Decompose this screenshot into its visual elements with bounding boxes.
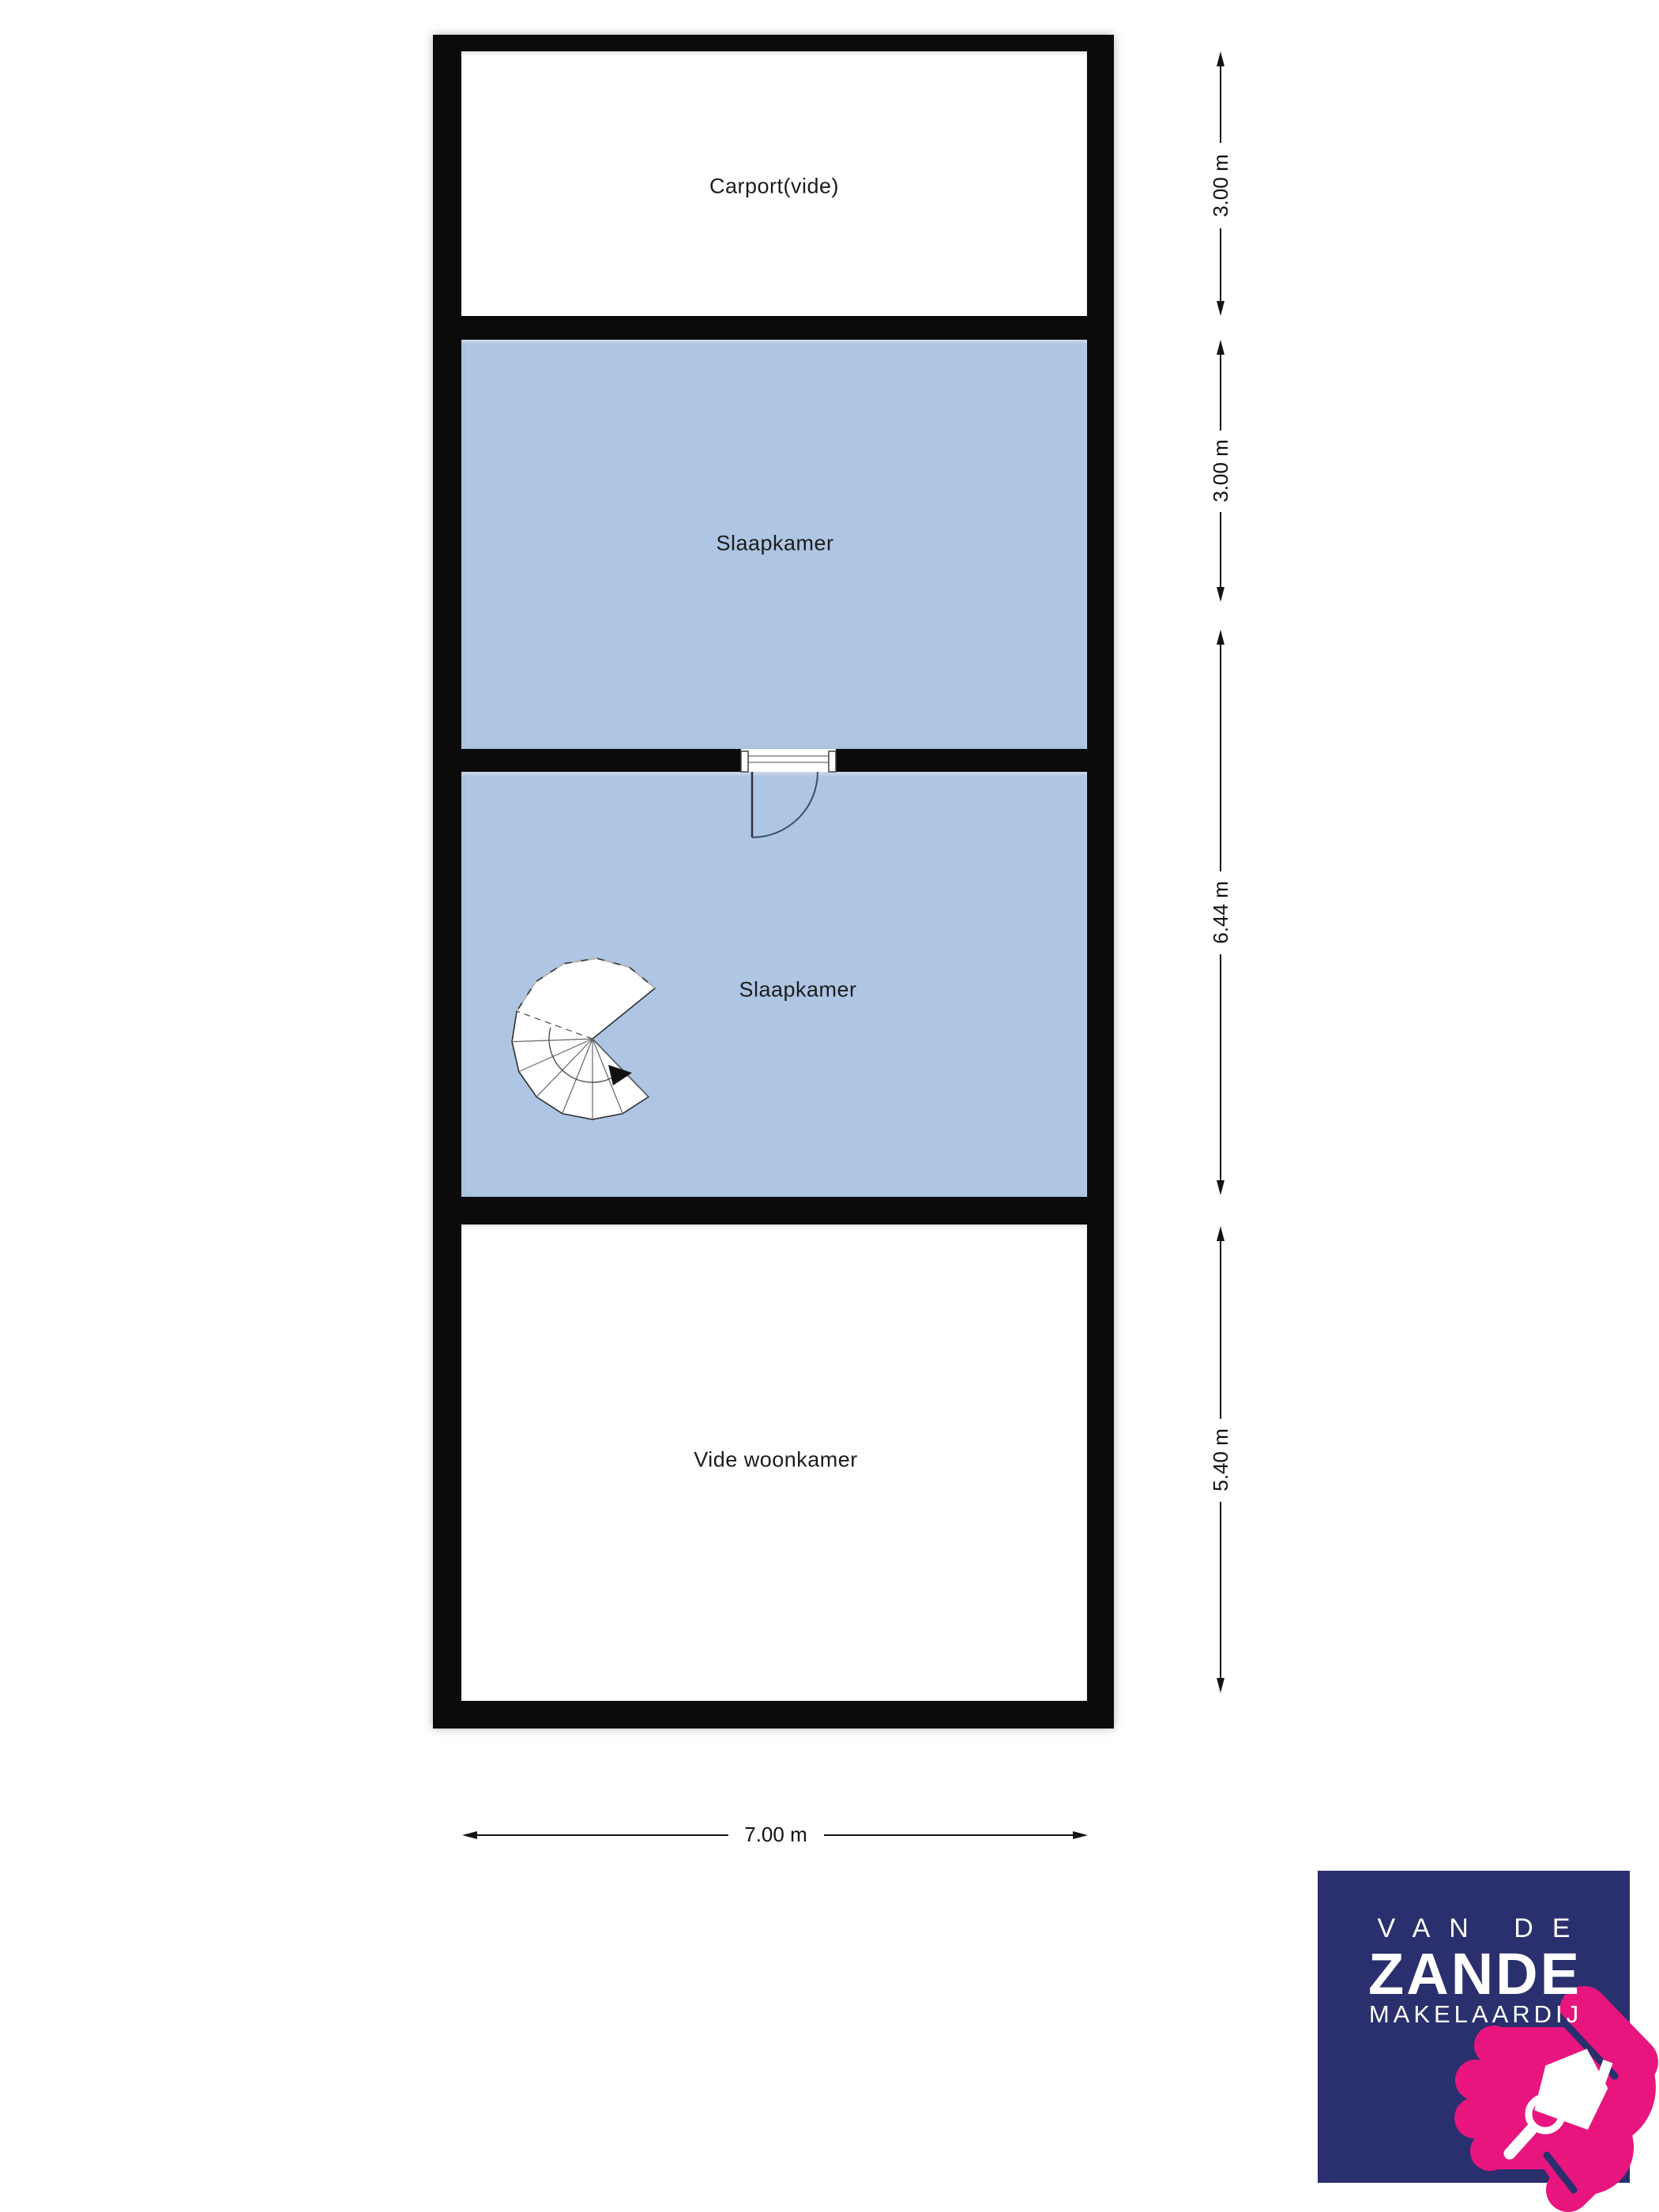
- dimension-line: [1220, 1502, 1221, 1680]
- room-label-slaapkamer-boven: Slaapkamer: [716, 532, 833, 556]
- dimension-line: [824, 1834, 1076, 1836]
- dimension-line: [1220, 512, 1221, 589]
- dimension-line: [1220, 228, 1221, 303]
- arrowhead-icon: [1217, 301, 1224, 316]
- dimension-line: [1220, 954, 1221, 1182]
- dimension-line: [1220, 643, 1221, 871]
- logo-text-zande: ZANDE: [1318, 1940, 1630, 2007]
- room-label-slaapkamer-onder: Slaapkamer: [739, 978, 856, 1003]
- logo-text-makelaardij: MAKELAARDIJ: [1318, 2000, 1630, 2029]
- arrowhead-icon: [1217, 1678, 1224, 1693]
- arrowhead-icon: [1217, 1180, 1224, 1195]
- dimension-label: 3.00 m: [1209, 416, 1232, 526]
- arrowhead-icon: [1073, 1831, 1088, 1839]
- door-swing-icon: [711, 743, 869, 853]
- dimension-line: [476, 1834, 728, 1836]
- arrowhead-icon: [1217, 587, 1224, 602]
- dimension-label: 3.00 m: [1209, 130, 1232, 241]
- dimension-label: 5.40 m: [1209, 1405, 1232, 1515]
- spiral-staircase-icon: [506, 948, 679, 1130]
- room-label-carport: Carport(vide): [709, 175, 839, 199]
- dimension-label: 7.00 m: [720, 1822, 831, 1847]
- dimension-label: 6.44 m: [1209, 857, 1232, 968]
- room-label-vide-woonkamer: Vide woonkamer: [694, 1448, 858, 1473]
- dimension-line: [1220, 1240, 1221, 1419]
- floorplan-page: Carport(vide) Slaapkamer Slaapkamer Vide…: [0, 0, 1659, 2212]
